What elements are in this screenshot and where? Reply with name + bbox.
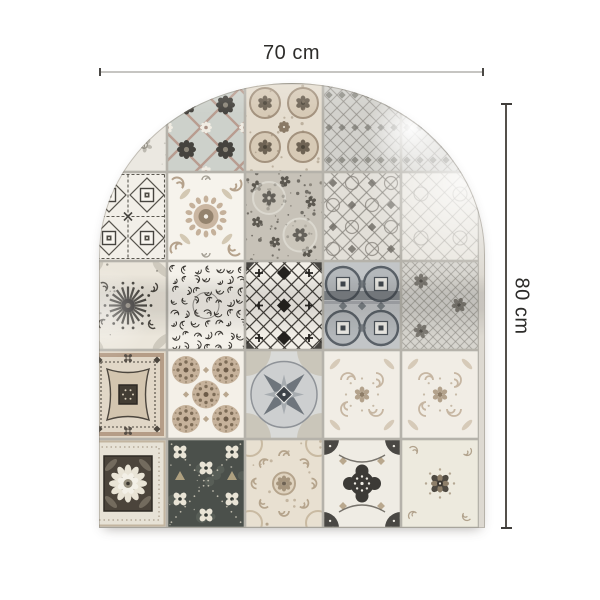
- tile-grayLattice: [401, 83, 479, 172]
- tile-arabesqueLight: [401, 172, 479, 261]
- tile-flowerFrame: [99, 439, 167, 528]
- tile-crosshatch: [245, 261, 323, 350]
- tile-floralCircles: [245, 172, 323, 261]
- tile-darkPetals: [167, 439, 245, 528]
- tile-laceScroll: [167, 261, 245, 350]
- width-dimension-label: 70 cm: [99, 42, 484, 64]
- tile-grayOrnate: [401, 261, 479, 350]
- tile-taupeFloral: [245, 83, 323, 172]
- height-dimension-label: 80 cm: [510, 278, 533, 335]
- height-dimension-line: [505, 103, 507, 529]
- tile-concentricFrames: [99, 350, 167, 439]
- tile-swirlLight: [323, 350, 401, 439]
- tile-swirlLight: [401, 350, 479, 439]
- tile-grid: [99, 83, 485, 528]
- tile-squaresCross: [99, 172, 167, 261]
- tile-fadedFloral: [99, 83, 167, 172]
- tile-dotCircles: [167, 350, 245, 439]
- tile-arabesque: [323, 172, 401, 261]
- tile-diamondFlowers: [167, 83, 245, 172]
- tile-lightCross: [401, 439, 479, 528]
- tile-sunflower: [99, 261, 167, 350]
- tile-softDamask: [245, 439, 323, 528]
- product-dimension-diagram: 70 cm 80 cm: [0, 0, 600, 600]
- width-dimension-line: [99, 71, 484, 73]
- tile-scrollMedallion: [167, 172, 245, 261]
- tile-grayLattice: [323, 83, 401, 172]
- tile-quatrefoil: [323, 439, 401, 528]
- tile-compass: [245, 350, 323, 439]
- tile-panel-image: [99, 83, 485, 528]
- tile-circleSquares: [323, 261, 401, 350]
